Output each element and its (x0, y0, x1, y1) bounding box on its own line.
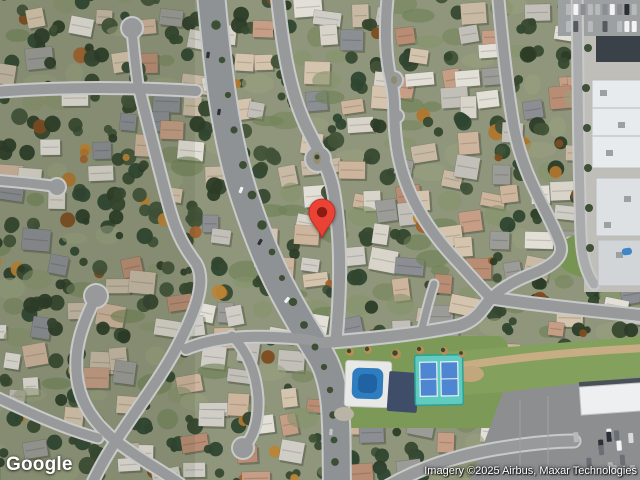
google-logo[interactable]: Google (6, 454, 73, 476)
attribution-text: Imagery ©2025 Airbus, Maxar Technologies (424, 465, 637, 477)
map-pin-icon[interactable] (307, 198, 337, 240)
satellite-map[interactable]: Google Imagery ©2025 Airbus, Maxar Techn… (0, 0, 640, 480)
